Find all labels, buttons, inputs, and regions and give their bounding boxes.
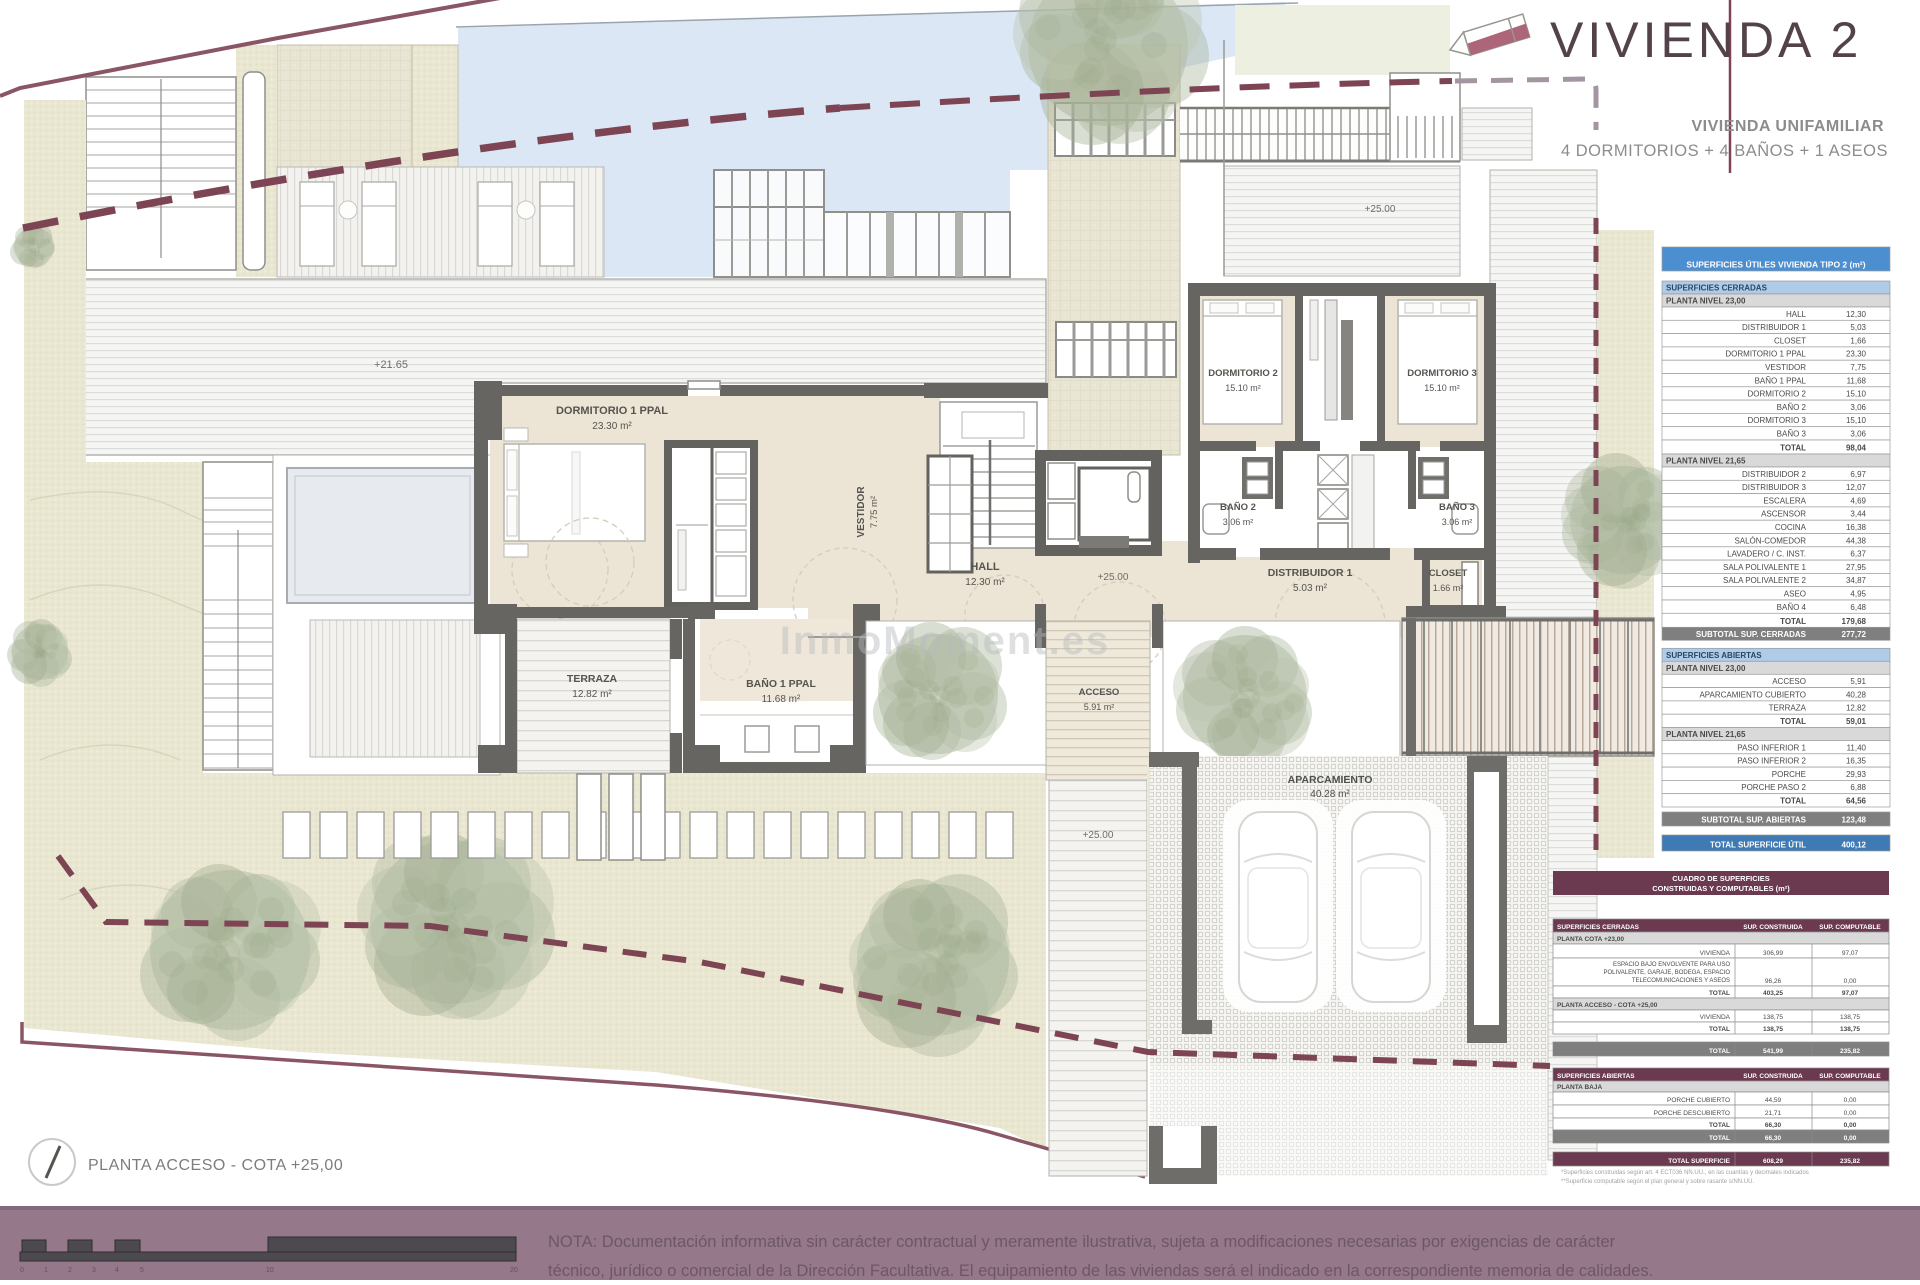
svg-text:TOTAL: TOTAL [1780,797,1806,806]
svg-text:DORMITORIO 2: DORMITORIO 2 [1747,390,1806,399]
svg-text:+25.00: +25.00 [1365,204,1396,215]
svg-text:ASCENSOR: ASCENSOR [1761,510,1806,519]
svg-text:BAÑO 1 PPAL: BAÑO 1 PPAL [746,677,816,690]
svg-text:4,95: 4,95 [1850,590,1866,599]
svg-text:7,75: 7,75 [1850,363,1866,372]
svg-text:DORMITORIO 1 PPAL: DORMITORIO 1 PPAL [1725,350,1806,359]
svg-text:ESPACIO BAJO ENVOLVENTE PARA U: ESPACIO BAJO ENVOLVENTE PARA USO [1613,962,1730,968]
svg-text:DISTRIBUIDOR 2: DISTRIBUIDOR 2 [1742,470,1807,479]
svg-text:DORMITORIO 3: DORMITORIO 3 [1407,368,1477,379]
svg-text:59,01: 59,01 [1846,717,1867,726]
svg-text:235,82: 235,82 [1840,1158,1860,1165]
svg-text:10: 10 [266,1267,274,1274]
svg-text:40,28: 40,28 [1846,690,1867,699]
svg-text:179,68: 179,68 [1842,617,1867,626]
svg-text:4 DORMITORIOS + 4 BAÑOS + 1 A: 4 DORMITORIOS + 4 BAÑOS + 1 ASEOS [1561,140,1888,160]
svg-text:0: 0 [20,1267,24,1274]
svg-text:TOTAL SUPERFICIE: TOTAL SUPERFICIE [1668,1158,1730,1165]
svg-text:21,71: 21,71 [1765,1110,1782,1117]
svg-text:6,88: 6,88 [1850,783,1866,792]
svg-text:NOTA: Documentación informativ: NOTA: Documentación informativa sin cará… [548,1233,1616,1251]
svg-text:TOTAL: TOTAL [1709,1135,1730,1142]
svg-text:16,38: 16,38 [1846,523,1867,532]
svg-text:TELECOMUNICACIONES Y ASEOS: TELECOMUNICACIONES Y ASEOS [1632,978,1730,984]
svg-text:5,03: 5,03 [1850,323,1866,332]
svg-text:277,72: 277,72 [1842,630,1867,639]
svg-text:+21.65: +21.65 [374,359,408,371]
svg-text:11,68: 11,68 [1847,376,1867,385]
svg-text:12.82 m²: 12.82 m² [572,689,612,700]
svg-text:VESTIDOR: VESTIDOR [1765,363,1806,372]
svg-text:SUPERFICIES ABIERTAS: SUPERFICIES ABIERTAS [1557,1073,1635,1080]
svg-text:PLANTA ACCESO - COTA +25,00: PLANTA ACCESO - COTA +25,00 [88,1157,343,1174]
svg-text:APARCAMIENTO CUBIERTO: APARCAMIENTO CUBIERTO [1699,690,1806,699]
svg-text:16,35: 16,35 [1846,757,1867,766]
svg-text:PORCHE PASO 2: PORCHE PASO 2 [1741,783,1806,792]
svg-text:541,99: 541,99 [1763,1048,1783,1055]
svg-text:SUP. COMPUTABLE: SUP. COMPUTABLE [1819,924,1881,931]
svg-text:PLANTA NIVEL 23,00: PLANTA NIVEL 23,00 [1666,664,1746,673]
svg-text:15.10 m²: 15.10 m² [1225,383,1261,393]
svg-text:TOTAL: TOTAL [1709,1048,1730,1055]
svg-text:SUBTOTAL SUP. ABIERTAS: SUBTOTAL SUP. ABIERTAS [1701,816,1806,825]
svg-text:VIVIENDA: VIVIENDA [1700,950,1731,957]
svg-text:15,10: 15,10 [1846,390,1867,399]
svg-text:BAÑO 1 PPAL: BAÑO 1 PPAL [1755,376,1807,385]
svg-text:InmoMoment.es: InmoMoment.es [780,619,1110,663]
svg-text:0,00: 0,00 [1844,1122,1857,1129]
svg-text:27,95: 27,95 [1846,563,1867,572]
svg-text:0,00: 0,00 [1844,1097,1857,1104]
svg-text:ACCESO: ACCESO [1772,677,1806,686]
svg-text:LAVADERO / C. INST.: LAVADERO / C. INST. [1727,550,1806,559]
svg-text:66,30: 66,30 [1765,1135,1782,1142]
svg-text:TERRAZA: TERRAZA [567,673,618,685]
svg-text:CONSTRUIDAS Y COMPUTABLES (m²): CONSTRUIDAS Y COMPUTABLES (m²) [1652,884,1790,893]
svg-text:PLANTA NIVEL 21,65: PLANTA NIVEL 21,65 [1666,730,1746,739]
svg-text:44,38: 44,38 [1846,536,1867,545]
svg-text:3,06: 3,06 [1850,403,1866,412]
svg-text:SUBTOTAL SUP. CERRADAS: SUBTOTAL SUP. CERRADAS [1696,630,1807,639]
svg-text:HALL: HALL [1786,310,1807,319]
svg-text:VIVIENDA UNIFAMILIAR: VIVIENDA UNIFAMILIAR [1691,118,1884,135]
svg-text:**Superficie computable según: **Superficie computable según el plan ge… [1561,1179,1754,1185]
svg-text:3.06 m²: 3.06 m² [1442,517,1473,527]
svg-text:TOTAL: TOTAL [1709,990,1730,997]
svg-text:TOTAL: TOTAL [1709,1122,1730,1129]
svg-text:5.03 m²: 5.03 m² [1293,583,1328,594]
svg-text:138,75: 138,75 [1840,1026,1860,1033]
svg-text:VESTIDOR: VESTIDOR [856,486,867,538]
svg-text:PLANTA NIVEL 23,00: PLANTA NIVEL 23,00 [1666,297,1746,306]
svg-text:SUPERFICIES CERRADAS: SUPERFICIES CERRADAS [1557,924,1640,931]
svg-text:11.68 m²: 11.68 m² [762,694,801,705]
svg-text:97,07: 97,07 [1842,990,1859,997]
svg-text:7.75 m²: 7.75 m² [869,496,880,528]
svg-text:SUPERFICIES CERRADAS: SUPERFICIES CERRADAS [1666,284,1768,293]
svg-text:5.91 m²: 5.91 m² [1084,702,1115,712]
svg-text:15,10: 15,10 [1846,416,1867,425]
svg-text:1: 1 [44,1267,48,1274]
svg-text:COCINA: COCINA [1775,523,1807,532]
svg-text:4,69: 4,69 [1850,496,1866,505]
svg-text:6,48: 6,48 [1850,603,1866,612]
svg-text:PLANTA COTA +23,00: PLANTA COTA +23,00 [1557,936,1624,943]
svg-text:15.10 m²: 15.10 m² [1424,383,1460,393]
svg-text:DISTRIBUIDOR 1: DISTRIBUIDOR 1 [1268,567,1353,579]
svg-text:12,30: 12,30 [1846,310,1867,319]
svg-text:235,82: 235,82 [1840,1048,1860,1055]
svg-text:5: 5 [140,1267,144,1274]
svg-text:23.30 m²: 23.30 m² [592,421,632,432]
svg-text:4: 4 [115,1267,119,1274]
svg-text:403,25: 403,25 [1763,990,1783,997]
svg-text:SUP. CONSTRUIDA: SUP. CONSTRUIDA [1743,1073,1803,1080]
svg-text:VIVIENDA: VIVIENDA [1700,1014,1731,1021]
svg-text:PLANTA BAJA: PLANTA BAJA [1557,1084,1602,1091]
svg-text:ACCESO: ACCESO [1079,687,1120,698]
svg-text:123,48: 123,48 [1842,816,1867,825]
svg-text:BAÑO 3: BAÑO 3 [1439,502,1475,513]
svg-text:TOTAL: TOTAL [1780,717,1806,726]
svg-text:138,75: 138,75 [1763,1026,1783,1033]
svg-text:138,75: 138,75 [1763,1014,1783,1021]
svg-text:3,06: 3,06 [1850,430,1866,439]
svg-text:96,26: 96,26 [1765,978,1782,985]
svg-text:40.28 m²: 40.28 m² [1310,789,1350,800]
svg-text:6,37: 6,37 [1850,550,1866,559]
svg-text:138,75: 138,75 [1840,1014,1860,1021]
svg-text:SALA POLIVALENTE 1: SALA POLIVALENTE 1 [1723,563,1807,572]
svg-text:TOTAL: TOTAL [1780,617,1806,626]
svg-text:PORCHE: PORCHE [1772,770,1806,779]
svg-text:97,07: 97,07 [1842,950,1859,957]
svg-text:HALL: HALL [970,561,1000,573]
svg-text:64,56: 64,56 [1846,797,1867,806]
svg-text:CLOSET: CLOSET [1429,568,1468,579]
svg-text:66,30: 66,30 [1765,1122,1782,1129]
svg-text:400,12: 400,12 [1842,841,1867,850]
svg-text:SUPERFICIES ABIERTAS: SUPERFICIES ABIERTAS [1666,651,1762,660]
svg-text:306,99: 306,99 [1763,950,1783,957]
svg-text:98,04: 98,04 [1846,444,1867,453]
svg-text:PLANTA NIVEL 21,65: PLANTA NIVEL 21,65 [1666,457,1746,466]
svg-text:PORCHE CUBIERTO: PORCHE CUBIERTO [1667,1097,1730,1104]
svg-text:ASEO: ASEO [1784,590,1806,599]
svg-text:0,00: 0,00 [1844,1135,1857,1142]
svg-text:0,00: 0,00 [1844,1110,1857,1117]
svg-text:DISTRIBUIDOR 3: DISTRIBUIDOR 3 [1742,483,1807,492]
svg-text:1,66: 1,66 [1850,336,1866,345]
svg-text:12,07: 12,07 [1846,483,1867,492]
svg-text:20: 20 [510,1267,518,1274]
svg-text:PORCHE DESCUBIERTO: PORCHE DESCUBIERTO [1654,1110,1730,1117]
svg-text:BAÑO 2: BAÑO 2 [1777,403,1807,412]
svg-text:12,82: 12,82 [1846,704,1867,713]
svg-text:2: 2 [68,1267,72,1274]
svg-text:BAÑO 4: BAÑO 4 [1777,603,1807,612]
svg-text:POLIVALENTE, GARAJE, BODEGA, E: POLIVALENTE, GARAJE, BODEGA, ESPACIO [1604,970,1731,976]
svg-text:11,40: 11,40 [1847,743,1867,752]
svg-text:APARCAMIENTO: APARCAMIENTO [1288,774,1373,786]
svg-text:CUADRO DE SUPERFICIES: CUADRO DE SUPERFICIES [1672,874,1770,883]
svg-text:BAÑO 3: BAÑO 3 [1777,430,1807,439]
svg-text:608,29: 608,29 [1763,1158,1783,1165]
svg-text:BAÑO 2: BAÑO 2 [1220,502,1256,513]
svg-text:técnico, jurídico o comercial: técnico, jurídico o comercial de la Dire… [548,1262,1653,1280]
svg-text:SALA POLIVALENTE 2: SALA POLIVALENTE 2 [1723,576,1807,585]
svg-text:29,93: 29,93 [1846,770,1867,779]
svg-text:3,44: 3,44 [1850,510,1866,519]
svg-text:12.30 m²: 12.30 m² [965,577,1005,588]
svg-text:SUP. COMPUTABLE: SUP. COMPUTABLE [1819,1073,1881,1080]
svg-text:TOTAL: TOTAL [1780,444,1806,453]
svg-text:5,91: 5,91 [1850,677,1866,686]
svg-text:TOTAL: TOTAL [1709,1026,1730,1033]
svg-text:ESCALERA: ESCALERA [1763,496,1806,505]
svg-text:SALÓN-COMEDOR: SALÓN-COMEDOR [1734,536,1806,545]
svg-text:+25.00: +25.00 [1098,572,1129,583]
svg-text:1.66 m²: 1.66 m² [1433,583,1464,593]
svg-text:6,97: 6,97 [1850,470,1866,479]
svg-text:3.06 m²: 3.06 m² [1223,517,1254,527]
svg-text:44,59: 44,59 [1765,1097,1782,1104]
svg-text:+25.00: +25.00 [1083,830,1114,841]
svg-text:PASO INFERIOR 2: PASO INFERIOR 2 [1737,757,1806,766]
svg-text:*Superficies construidas según: *Superficies construidas según art. 4 EC… [1561,1170,1809,1176]
svg-text:0,00: 0,00 [1844,978,1857,985]
svg-text:SUP. CONSTRUIDA: SUP. CONSTRUIDA [1743,924,1803,931]
svg-text:23,30: 23,30 [1846,350,1867,359]
svg-text:DORMITORIO 1 PPAL: DORMITORIO 1 PPAL [556,405,668,417]
svg-text:DORMITORIO 2: DORMITORIO 2 [1208,368,1278,379]
svg-text:VIVIENDA 2: VIVIENDA 2 [1550,12,1862,68]
svg-text:SUPERFICIES ÚTILES VIVIENDA TI: SUPERFICIES ÚTILES VIVIENDA TIPO 2 (m²) [1686,259,1865,270]
svg-text:TERRAZA: TERRAZA [1769,704,1807,713]
svg-text:PLANTA ACCESO - COTA +25,00: PLANTA ACCESO - COTA +25,00 [1557,1002,1658,1009]
svg-text:DISTRIBUIDOR 1: DISTRIBUIDOR 1 [1742,323,1807,332]
svg-text:CLOSET: CLOSET [1774,336,1806,345]
svg-text:34,87: 34,87 [1846,576,1867,585]
svg-text:3: 3 [92,1267,96,1274]
svg-text:PASO INFERIOR 1: PASO INFERIOR 1 [1737,743,1806,752]
svg-text:TOTAL SUPERFICIE ÚTIL: TOTAL SUPERFICIE ÚTIL [1710,841,1806,850]
svg-text:DORMITORIO 3: DORMITORIO 3 [1747,416,1806,425]
